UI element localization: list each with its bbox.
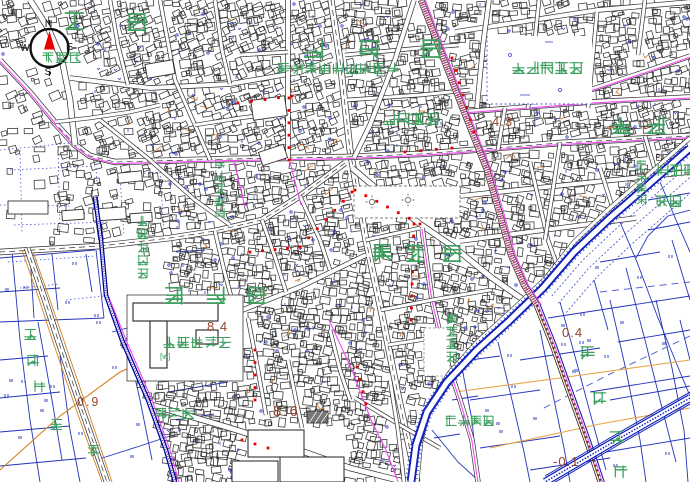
svg-text:0.9: 0.9 (77, 395, 100, 409)
svg-text:-0.1: -0.1 (553, 454, 579, 469)
svg-text:8.4: 8.4 (207, 319, 228, 334)
svg-text:N: N (45, 18, 53, 30)
svg-text:W: W (20, 42, 30, 54)
svg-text:0.4: 0.4 (562, 325, 583, 340)
svg-text:S: S (44, 66, 51, 78)
svg-text:4.3: 4.3 (492, 114, 513, 129)
svg-text:E: E (66, 41, 73, 53)
svg-text:8.6: 8.6 (273, 403, 300, 420)
svg-text:[w]: [w] (160, 352, 170, 361)
